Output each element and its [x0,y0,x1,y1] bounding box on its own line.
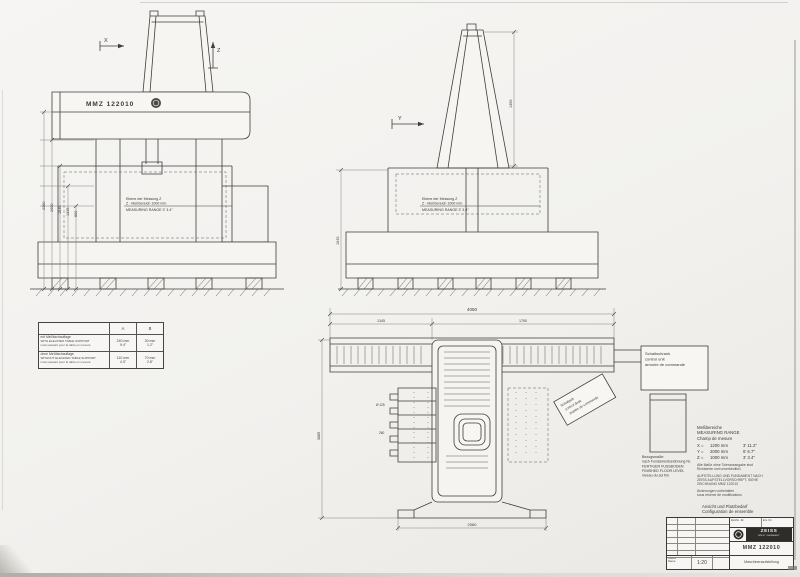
svg-text:control unit: control unit [645,357,665,362]
part-number: MMZ 122010 [730,542,793,556]
dim-label: 1545 [58,206,62,214]
scan-edge-left [2,90,3,510]
dim-label: 2000 [50,204,54,212]
revision-table: Datum Name 1:20 [667,518,730,569]
brand-plate: ZEISS WEST GERMANY [746,528,792,541]
table-row-label: mit Meßtischauflage WITH ELEVATED TABLE … [39,334,109,351]
svg-text:FERTIGER FUSSBODEN: FERTIGER FUSSBODEN [642,465,684,469]
svg-text:MEASURING RANGE 3' 3.4": MEASURING RANGE 3' 3.4" [422,208,469,212]
axis-z-label: Z [217,48,221,54]
table-header-b: B [136,323,163,334]
measuring-plane-note-side: Ebene der Messung Z Z - Meßbereich 1000 … [422,197,469,212]
table-cell: 240 mm 9.4" [109,334,136,351]
dim-label: 1345 [66,208,70,216]
range-z: Z = 1000 mm 3' 3.4" [697,455,783,461]
table-cell: 110 mm 4.3" [109,351,136,368]
document-name: Maschinenaufstellung [730,556,793,569]
svg-text:nach Fundamentzeichnung Nr.: nach Fundamentzeichnung Nr. [642,460,691,464]
scan-mark [788,566,797,570]
replacement-cell: Ers. für [762,518,793,527]
title-block-header-cells: Zeichn.-Nr. Ers. für [730,518,793,528]
measuring-ranges-block: Meßbereiche MEASURING RANGE Champ de mes… [697,425,783,498]
clearance-table: A B mit Meßtischauflage WITH ELEVATED TA… [38,322,164,369]
dim-label: 2360 [42,202,46,210]
axis-x-label: X [104,38,108,44]
control-desk-outline [554,374,616,425]
dim-label: 1355 [509,100,513,108]
dim-label: 2060 [468,522,478,527]
scale-cell: 1:20 [692,556,713,569]
svg-text:armoire de commande: armoire de commande [645,362,686,367]
svg-text:Bezugsmaße:: Bezugsmaße: [642,455,664,459]
svg-text:Schaltschrank: Schaltschrank [645,351,670,356]
plan-view: 4050 1345 1750 3685 2060 Ø 125 260 Schal… [317,307,708,531]
table-cell: 30 mm 1.2" [136,334,163,351]
date-name-cell: Datum Name [667,556,692,569]
scan-edge-bottom [0,573,800,577]
dim-label: Ø 125 [376,403,385,407]
svg-text:FINISHED FLOOR LEVEL: FINISHED FLOOR LEVEL [642,469,684,473]
axis-arrow-side [392,119,424,129]
title-block: Ansicht und Platzbedarf Configuration de… [666,504,795,572]
table-row-label: ohne Meßtischauflage WITHOUT ELEVATED TA… [39,351,109,368]
dim-label: 1045 [336,237,340,245]
drawing-title: Ansicht und Platzbedarf Configuration de… [702,504,753,515]
drawing-linework: MMZ 122010 X Z 2360 2000 1545 1345 800 E… [0,0,800,577]
dim-label: 800 [74,211,78,217]
table-header-a: A [109,323,136,334]
drawno-cell: Zeichn.-Nr. [730,518,762,527]
front-view: MMZ 122010 X Z 2360 2000 1545 1345 800 E… [30,11,284,296]
svg-text:Ebene der Messung Z: Ebene der Messung Z [126,197,162,201]
floor-note: Bezugsmaße: nach Fundamentzeichnung Nr. … [642,455,691,478]
dim-label: 4050 [467,307,478,312]
measuring-plane-note-front: Ebene der Messung Z Z - Meßbereich 1000 … [126,197,173,212]
scan-edge-right [794,40,796,560]
machine-label: MMZ 122010 [86,101,134,108]
svg-text:Z - Meßbereich 1000 mm: Z - Meßbereich 1000 mm [126,202,166,206]
side-view: Y 1045 1355 Ebene der Messung Z Z - Meßb… [336,24,606,296]
svg-text:niveau du sol fini: niveau du sol fini [642,474,669,478]
svg-text:Z - Meßbereich 1000 mm: Z - Meßbereich 1000 mm [422,202,462,206]
svg-text:Ebene der Messung Z: Ebene der Messung Z [422,197,458,201]
drawing-sheet: MMZ 122010 X Z 2360 2000 1545 1345 800 E… [0,0,800,577]
dim-label: 260 [379,431,385,435]
measuring-notes: Alle Maße ohne Toleranzangabe sind Richt… [697,463,783,497]
scan-edge-top [140,2,788,3]
title-block-frame: Datum Name 1:20 Zeichn.-Nr. Ers. für [666,517,794,570]
dim-label: 1750 [519,319,527,323]
zeiss-logo-front [151,98,161,108]
table-cell: 70 mm 2.8" [136,351,163,368]
scan-shadow-corner [0,545,32,577]
axis-y-label: Y [398,116,402,122]
table-header-empty [39,323,109,334]
svg-text:MEASURING RANGE 3' 3.4": MEASURING RANGE 3' 3.4" [126,208,173,212]
dim-label: 1345 [377,319,385,323]
dim-label: 3685 [317,432,321,440]
zeiss-logo-icon [730,529,746,540]
